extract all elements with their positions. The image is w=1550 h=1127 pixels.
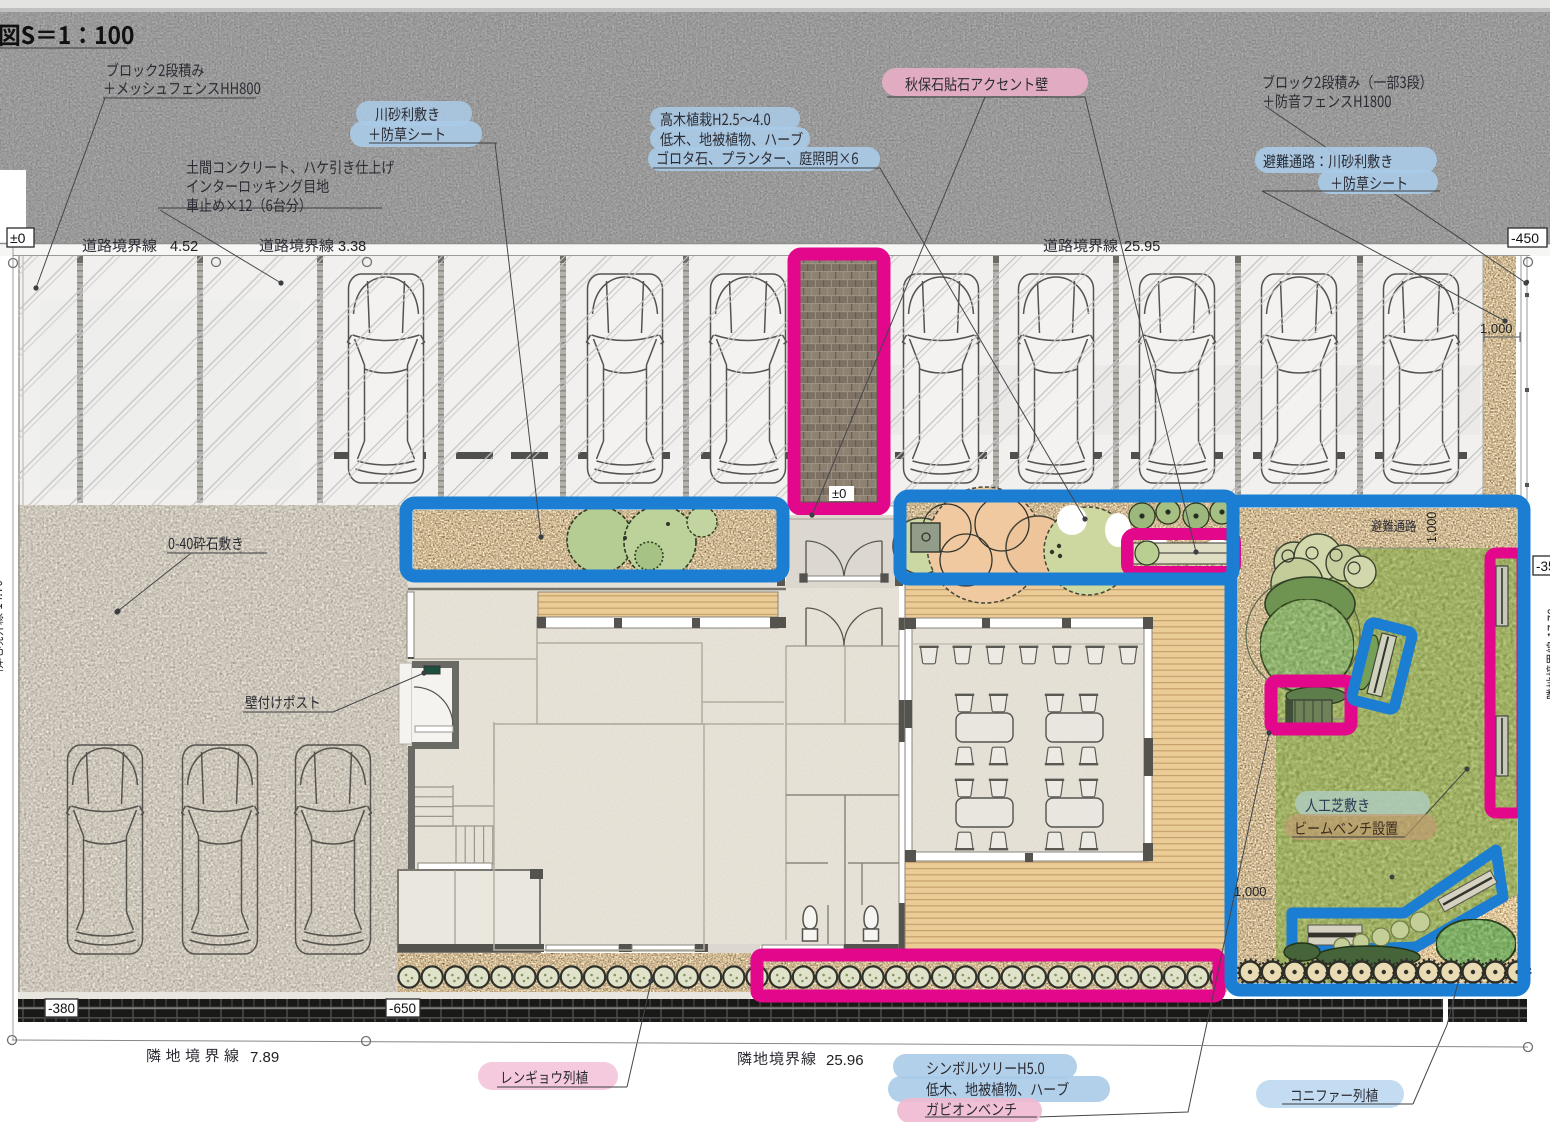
svg-text:-650: -650 (389, 1001, 416, 1016)
svg-text:25.95: 25.95 (1124, 239, 1160, 255)
svg-text:1,000: 1,000 (1480, 321, 1513, 336)
svg-text:-350: -350 (1536, 559, 1550, 574)
svg-text:±0: ±0 (832, 486, 846, 501)
svg-text:1,000: 1,000 (1234, 884, 1267, 899)
svg-text:-450: -450 (1511, 230, 1539, 246)
svg-text:±0: ±0 (10, 230, 26, 246)
svg-text:-380: -380 (48, 1001, 75, 1016)
svg-text:1,000: 1,000 (1425, 512, 1439, 543)
svg-text:4.52: 4.52 (170, 239, 198, 255)
svg-text:25.96: 25.96 (826, 1052, 864, 1069)
svg-text:3.38: 3.38 (338, 239, 366, 255)
svg-text:7.89: 7.89 (250, 1049, 279, 1066)
